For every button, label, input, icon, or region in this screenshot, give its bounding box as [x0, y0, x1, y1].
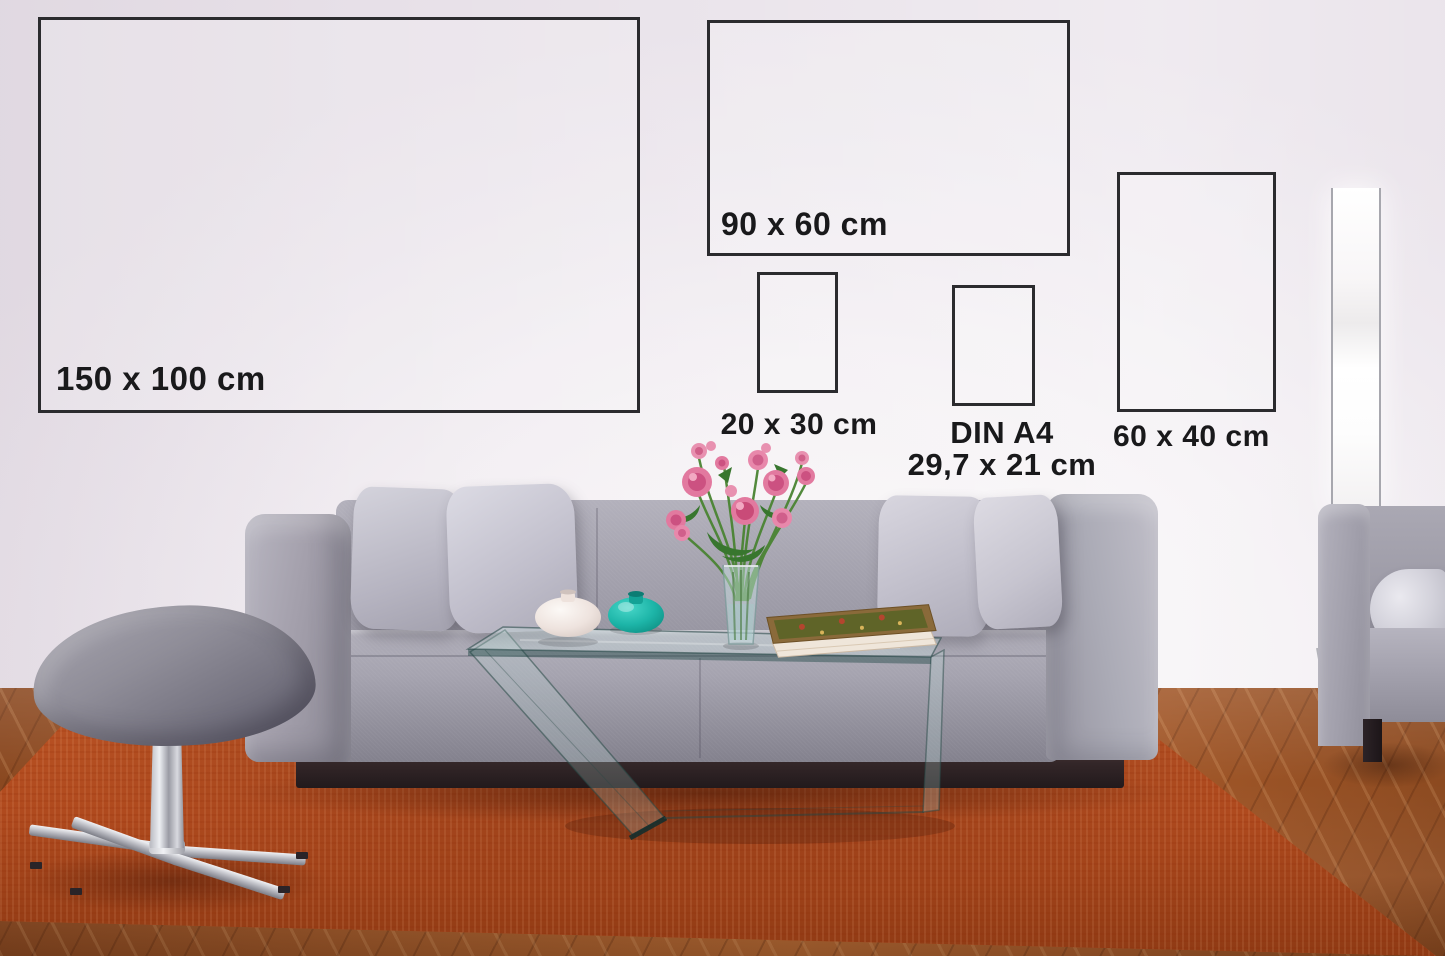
stool-foot: [278, 886, 290, 893]
right-sofa-leg: [1363, 719, 1382, 762]
sofa-seat-seam: [699, 658, 701, 758]
size-frame-din-a4: [952, 285, 1035, 406]
stool-pedestal: [150, 738, 184, 848]
din-a4-title: DIN A4: [886, 417, 1118, 449]
stool-foot: [70, 888, 82, 895]
right-sofa-shadow: [1322, 742, 1445, 788]
sofa-pillow: [973, 494, 1064, 630]
size-label-din-a4: DIN A4 29,7 x 21 cm: [886, 417, 1118, 481]
sofa-arm-right: [1046, 494, 1158, 760]
sofa-seat: [336, 630, 1060, 762]
size-frame-150x100: 150 x 100 cm: [38, 17, 640, 413]
right-sofa-arm: [1318, 504, 1370, 746]
living-room-size-guide: 150 x 100 cm 90 x 60 cm 20 x 30 cm DIN A…: [0, 0, 1445, 956]
sofa-seam: [596, 508, 598, 640]
floor-lamp: [1331, 188, 1381, 510]
size-label-90x60: 90 x 60 cm: [721, 206, 888, 243]
size-label-20x30: 20 x 30 cm: [711, 408, 887, 442]
size-frame-20x30: [757, 272, 838, 393]
size-frame-60x40: [1117, 172, 1276, 412]
stool-foot: [30, 862, 42, 869]
size-label-150x100: 150 x 100 cm: [56, 360, 266, 398]
size-label-60x40: 60 x 40 cm: [1113, 420, 1270, 454]
din-a4-dimensions: 29,7 x 21 cm: [886, 449, 1118, 481]
size-frame-90x60: 90 x 60 cm: [707, 20, 1070, 256]
sofa-seat-seam: [340, 655, 1056, 657]
sofa-pillow: [445, 483, 578, 634]
stool-foot: [296, 852, 308, 859]
